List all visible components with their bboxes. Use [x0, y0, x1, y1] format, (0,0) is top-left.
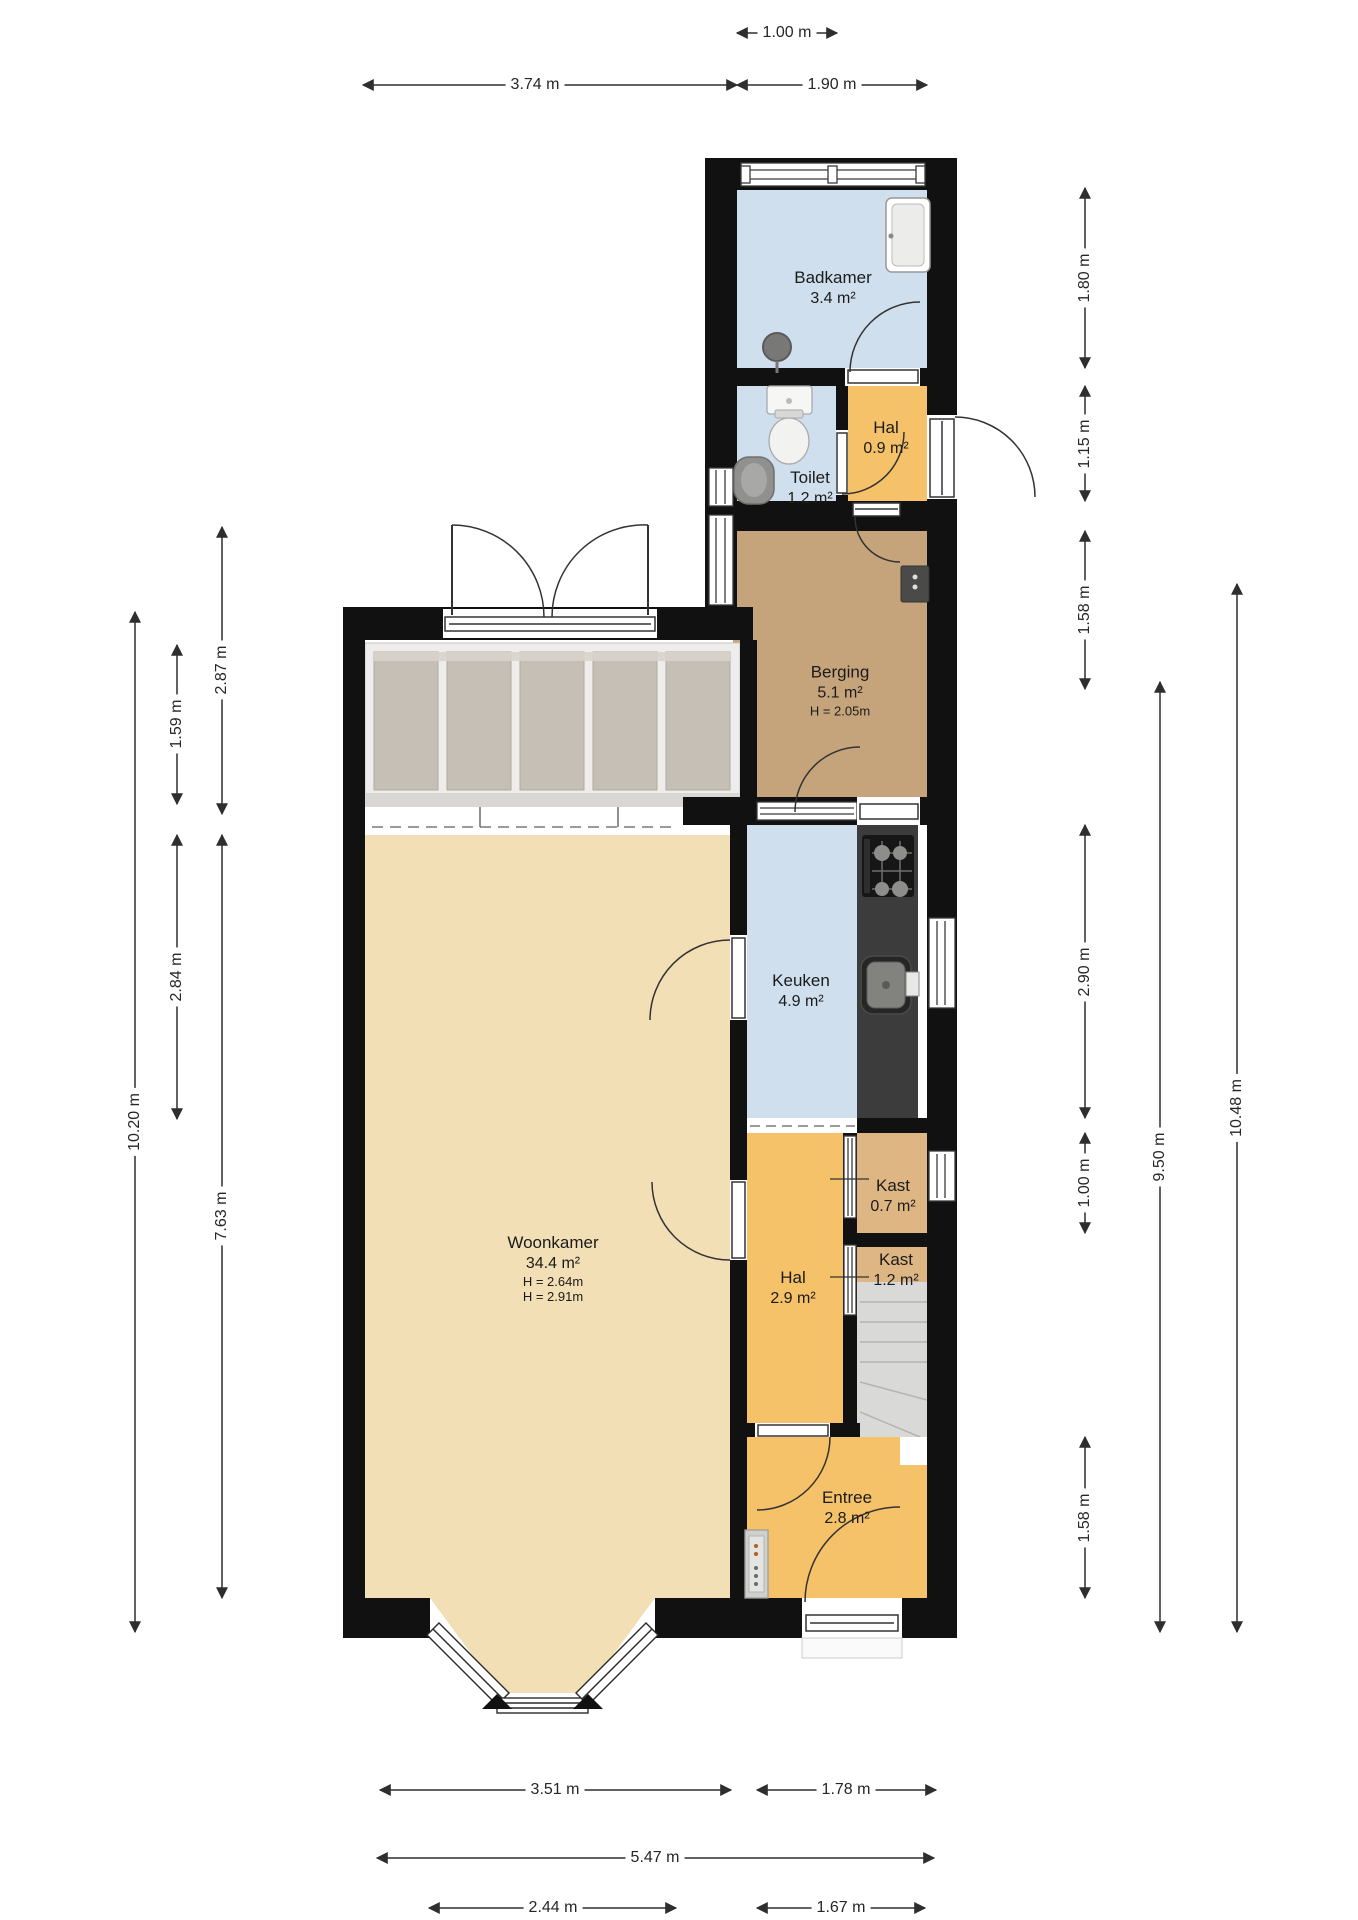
- kast-boven-label: Kast 0.7 m²: [870, 1175, 915, 1217]
- dim-label-left-serre-inner: 1.59 m: [168, 695, 186, 754]
- dim-label-bottom-entree: 1.78 m: [817, 1781, 876, 1799]
- dim-label-left-woonkamer-boven: 2.84 m: [168, 948, 186, 1007]
- dim-label-left-woonkamer: 7.63 m: [213, 1187, 231, 1246]
- room-name: Entree: [822, 1487, 872, 1508]
- stairs-floor: [857, 1282, 927, 1437]
- floor-plan-page: Badkamer 3.4 m² Toilet 1.2 m² Hal 0.9 m²…: [0, 0, 1358, 1920]
- serre-glass-roof: [365, 643, 740, 807]
- room-name: Kast: [873, 1249, 918, 1270]
- dim-label-right-entree: 1.58 m: [1076, 1489, 1094, 1548]
- room-area: 34.4 m²: [507, 1253, 598, 1274]
- woonkamer-label: Woonkamer 34.4 m² H = 2.64m H = 2.91m: [507, 1232, 598, 1304]
- room-name: Toilet: [787, 467, 832, 488]
- keuken-label: Keuken 4.9 m²: [772, 970, 830, 1012]
- room-name: Badkamer: [794, 267, 871, 288]
- floor-plan-drawing: [0, 0, 1358, 1920]
- room-area: 0.7 m²: [870, 1196, 915, 1217]
- dim-label-right-toilet: 1.15 m: [1076, 415, 1094, 474]
- dim-label-right-badkamer: 1.80 m: [1076, 249, 1094, 308]
- dim-label-right-total-inner: 9.50 m: [1151, 1128, 1169, 1187]
- meter-cabinet-icon: [745, 1530, 768, 1598]
- room-area: 1.2 m²: [873, 1270, 918, 1291]
- toilet-label: Toilet 1.2 m²: [787, 467, 832, 509]
- boiler-icon: [901, 566, 929, 602]
- dim-label-right-keuken: 2.90 m: [1076, 943, 1094, 1002]
- dim-label-left-total: 10.20 m: [126, 1088, 144, 1156]
- room-height: H = 2.64m: [507, 1274, 598, 1289]
- berging-keuken-window: [757, 802, 857, 820]
- room-area: 0.9 m²: [863, 438, 908, 459]
- dim-label-bottom-voordeur: 1.67 m: [812, 1899, 871, 1917]
- hal-boven-exterior-door: [927, 415, 1035, 499]
- badkamer-window: [741, 163, 925, 186]
- room-area: 3.4 m²: [794, 288, 871, 309]
- dim-label-top-inner: 1.00 m: [758, 24, 817, 42]
- hal-glass-partition-bottom: [844, 1245, 856, 1315]
- dim-label-right-berging: 1.58 m: [1076, 581, 1094, 640]
- hal-label: Hal 2.9 m²: [770, 1267, 815, 1309]
- kast-onder-label: Kast 1.2 m²: [873, 1249, 918, 1291]
- room-area: 1.2 m²: [787, 488, 832, 509]
- dim-label-bottom-erker: 2.44 m: [524, 1899, 583, 1917]
- hal-glass-partition-top: [844, 1136, 856, 1218]
- keuken-window: [929, 918, 955, 1008]
- toilet-window: [709, 468, 733, 506]
- room-name: Woonkamer: [507, 1232, 598, 1253]
- dim-label-top-right: 1.90 m: [803, 76, 862, 94]
- dim-label-bottom-woonkamer: 3.51 m: [526, 1781, 585, 1799]
- kast-window: [929, 1151, 955, 1201]
- berging-window-left: [709, 515, 733, 605]
- room-name: Berging: [810, 662, 870, 683]
- bathtub-icon: [886, 198, 930, 272]
- room-area: 4.9 m²: [772, 991, 830, 1012]
- badkamer-label: Badkamer 3.4 m²: [794, 267, 871, 309]
- room-height: H = 2.91m: [507, 1289, 598, 1304]
- toilet-sink-icon: [734, 457, 774, 504]
- berging-label: Berging 5.1 m² H = 2.05m: [810, 662, 870, 719]
- dim-label-left-serre-outer: 2.87 m: [213, 641, 231, 700]
- hob-icon: [862, 835, 914, 897]
- dim-label-right-kast: 1.00 m: [1076, 1154, 1094, 1213]
- room-height: H = 2.05m: [810, 704, 870, 719]
- room-name: Hal: [770, 1267, 815, 1288]
- room-name: Kast: [870, 1175, 915, 1196]
- kitchen-sink-icon: [861, 956, 919, 1014]
- room-area: 2.8 m²: [822, 1508, 872, 1529]
- dim-label-top-left: 3.74 m: [506, 76, 565, 94]
- room-area: 2.9 m²: [770, 1288, 815, 1309]
- hal-boven-label: Hal 0.9 m²: [863, 417, 908, 459]
- dim-label-bottom-total: 5.47 m: [626, 1849, 685, 1867]
- entree-label: Entree 2.8 m²: [822, 1487, 872, 1529]
- room-area: 5.1 m²: [810, 683, 870, 704]
- room-name: Keuken: [772, 970, 830, 991]
- serre-french-doors: [443, 525, 657, 638]
- room-name: Hal: [863, 417, 908, 438]
- dim-label-right-total-outer: 10.48 m: [1228, 1074, 1246, 1142]
